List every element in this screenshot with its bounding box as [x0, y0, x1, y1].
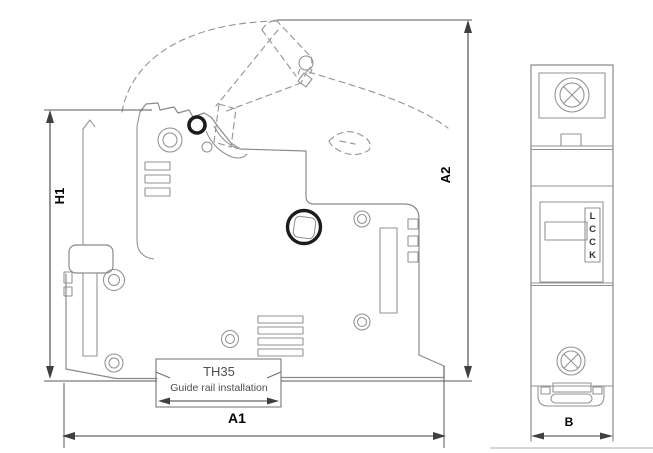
rail-model-label: TH35: [203, 364, 235, 379]
top-tab: [561, 134, 581, 146]
label-h1: H1: [52, 188, 67, 205]
dim-b: B: [531, 415, 613, 440]
rivet-icon: [222, 331, 239, 348]
rail-caption-label: Guide rail installation: [170, 382, 268, 394]
side-view: TH35 Guide rail installation H1 A2: [44, 20, 472, 448]
carrier-tip-dashed: [329, 132, 370, 155]
brand-letter: C: [589, 237, 596, 248]
label-a1: A1: [228, 410, 246, 426]
rivet-icon: [105, 354, 123, 372]
latch-pin-icon: [202, 142, 212, 152]
housing-outline: [66, 103, 444, 379]
din-rail-box: TH35 Guide rail installation: [156, 359, 281, 407]
brand-letter: K: [589, 250, 596, 261]
screw-head-icon: [557, 347, 585, 375]
front-view: L C C K B: [531, 65, 613, 441]
label-module: L C C K: [540, 202, 603, 282]
screw-head-icon: [555, 78, 589, 112]
vent-slats-lower: [258, 316, 303, 356]
technical-drawing-page: TH35 Guide rail installation H1 A2: [0, 0, 653, 453]
fuse-holder-drawing: TH35 Guide rail installation H1 A2: [0, 0, 653, 453]
label-a2: A2: [438, 167, 453, 184]
front-foot-bump: [69, 245, 113, 273]
brand-letter: C: [589, 224, 596, 235]
marking-window: [545, 222, 587, 240]
rail-width-arrow: [158, 398, 279, 405]
lever-pivot-icon: [189, 117, 205, 133]
brand-letter: L: [590, 211, 596, 222]
lever-swing-arc: [122, 21, 276, 112]
housing-details: [64, 117, 418, 372]
terminal-slot: [380, 228, 397, 313]
rivet-icon: [354, 211, 370, 227]
fuse-window-icon: [288, 211, 321, 244]
terminal-slot: [83, 273, 97, 356]
vent-slats-upper: [145, 162, 170, 196]
rivet-icon: [104, 270, 125, 291]
rivet-icon: [354, 314, 370, 330]
label-b: B: [565, 415, 574, 429]
rivet-icon: [158, 128, 182, 152]
open-lever-dashed: [214, 20, 370, 155]
carrier-swing-arc: [309, 72, 448, 128]
lever-lock-icon: [298, 56, 313, 87]
